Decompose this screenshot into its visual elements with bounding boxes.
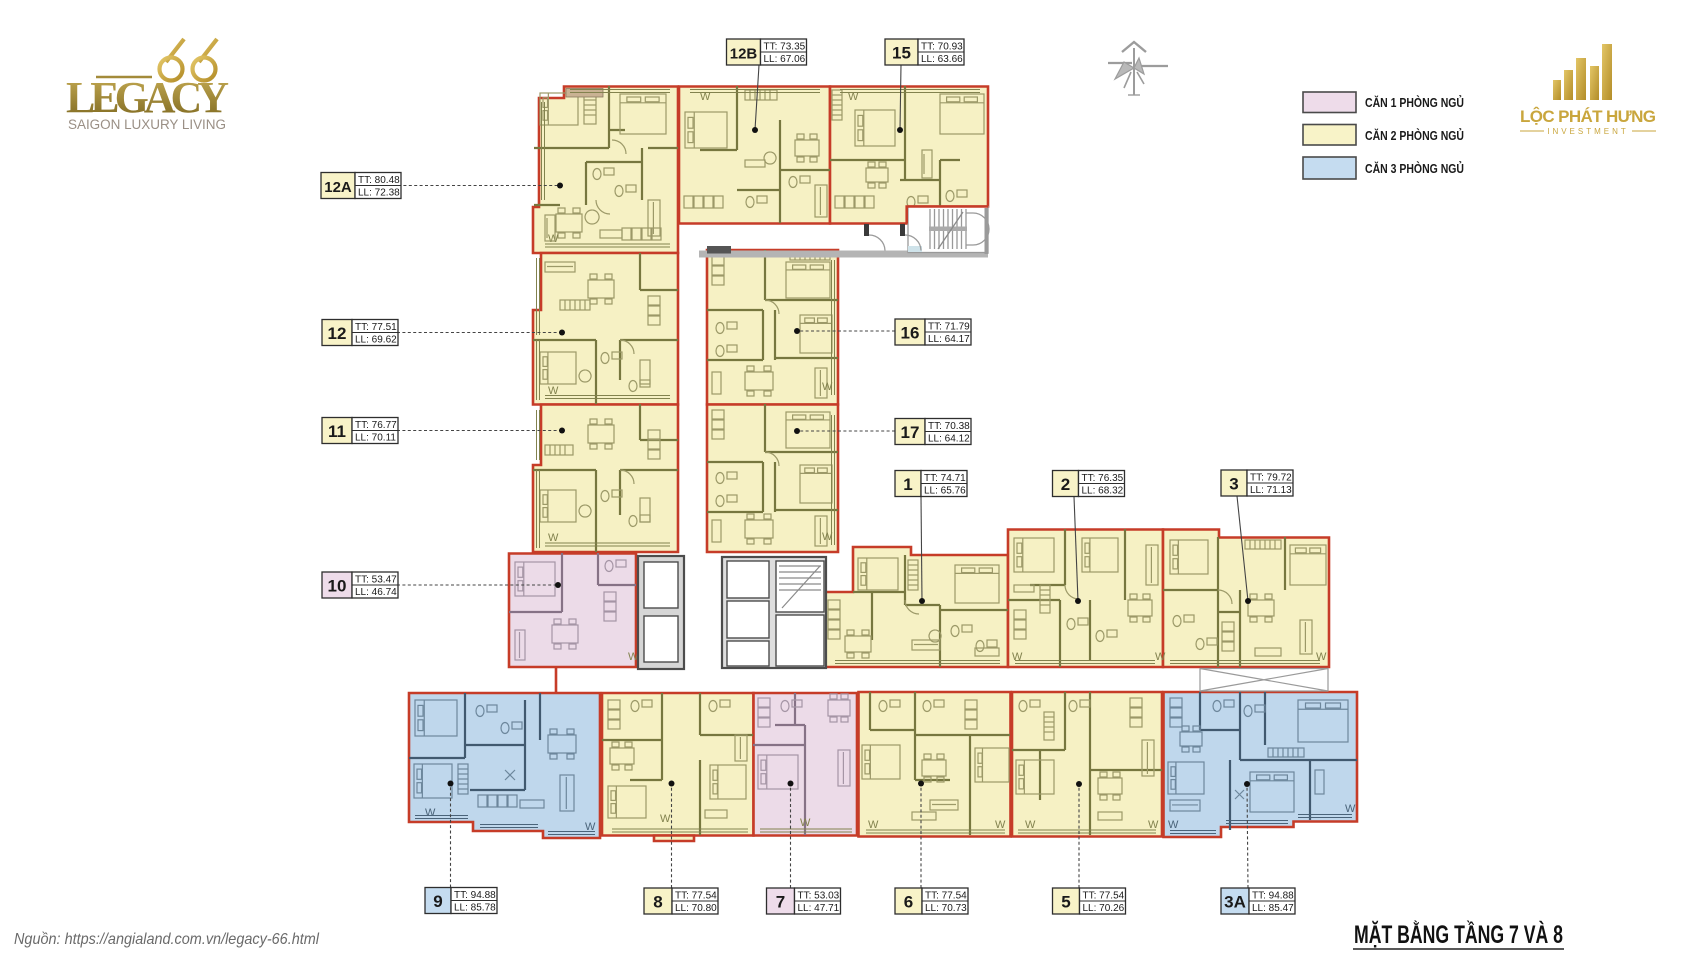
svg-text:SAIGON LUXURY LIVING: SAIGON LUXURY LIVING xyxy=(68,117,226,132)
svg-text:TT: 80.48: TT: 80.48 xyxy=(358,175,400,186)
svg-text:TT: 76.35: TT: 76.35 xyxy=(1082,473,1124,484)
svg-text:TT: 73.35: TT: 73.35 xyxy=(764,42,806,53)
svg-text:5: 5 xyxy=(1061,893,1070,912)
svg-text:LL: 63.66: LL: 63.66 xyxy=(921,54,963,65)
svg-text:TT: 71.79: TT: 71.79 xyxy=(928,322,970,333)
svg-text:TT: 76.77: TT: 76.77 xyxy=(355,420,397,431)
svg-text:W: W xyxy=(1012,651,1023,663)
svg-text:LL: 64.12: LL: 64.12 xyxy=(928,434,970,445)
svg-text:W: W xyxy=(1155,651,1166,663)
svg-text:W: W xyxy=(1168,819,1179,831)
svg-text:LL: 64.17: LL: 64.17 xyxy=(928,334,970,345)
svg-text:W: W xyxy=(800,817,811,829)
svg-text:TT: 94.88: TT: 94.88 xyxy=(1252,891,1294,902)
svg-text:LL: 70.11: LL: 70.11 xyxy=(355,433,396,444)
svg-text:17: 17 xyxy=(901,423,920,442)
svg-text:W: W xyxy=(822,381,833,393)
svg-text:LỘC PHÁT HƯNG: LỘC PHÁT HƯNG xyxy=(1520,107,1656,126)
svg-text:1: 1 xyxy=(903,475,912,494)
svg-text:W: W xyxy=(1345,803,1356,815)
svg-text:W: W xyxy=(700,91,711,103)
svg-text:2: 2 xyxy=(1061,475,1070,494)
svg-text:CĂN 2 PHÒNG NGỦ: CĂN 2 PHÒNG NGỦ xyxy=(1365,128,1464,143)
svg-text:TT: 70.38: TT: 70.38 xyxy=(928,421,970,432)
svg-text:LL: 70.26: LL: 70.26 xyxy=(1083,903,1125,914)
svg-text:W: W xyxy=(548,233,559,245)
svg-text:11: 11 xyxy=(328,422,346,441)
svg-text:9: 9 xyxy=(433,892,442,911)
svg-text:LL: 69.62: LL: 69.62 xyxy=(355,335,397,346)
svg-text:3: 3 xyxy=(1229,475,1238,494)
svg-text:LL: 71.13: LL: 71.13 xyxy=(1250,485,1292,496)
svg-text:W: W xyxy=(548,385,559,397)
svg-text:W: W xyxy=(585,821,596,833)
svg-text:LL: 47.71: LL: 47.71 xyxy=(798,903,840,914)
svg-text:LL: 67.06: LL: 67.06 xyxy=(764,54,806,65)
svg-text:6: 6 xyxy=(904,893,913,912)
svg-text:TT: 77.54: TT: 77.54 xyxy=(1083,891,1125,902)
svg-text:LL: 72.38: LL: 72.38 xyxy=(358,188,400,199)
svg-text:TT: 94.88: TT: 94.88 xyxy=(454,890,496,901)
svg-text:12B: 12B xyxy=(730,46,758,63)
svg-text:LL: 85.78: LL: 85.78 xyxy=(454,903,496,914)
svg-text:TT: 77.54: TT: 77.54 xyxy=(925,891,967,902)
svg-text:15: 15 xyxy=(892,44,911,63)
svg-text:W: W xyxy=(848,91,859,103)
svg-text:TT: 53.03: TT: 53.03 xyxy=(798,891,840,902)
svg-text:12: 12 xyxy=(328,324,347,343)
svg-text:TT: 70.93: TT: 70.93 xyxy=(921,42,963,53)
svg-text:LL: 46.74: LL: 46.74 xyxy=(355,587,397,598)
svg-text:TT: 74.71: TT: 74.71 xyxy=(924,473,966,484)
svg-text:LL: 70.73: LL: 70.73 xyxy=(925,903,967,914)
svg-text:8: 8 xyxy=(653,893,662,912)
svg-text:3A: 3A xyxy=(1224,893,1246,912)
svg-text:LEGACY: LEGACY xyxy=(66,73,229,122)
svg-text:CĂN 3 PHÒNG NGỦ: CĂN 3 PHÒNG NGỦ xyxy=(1365,161,1464,176)
svg-text:10: 10 xyxy=(328,577,347,596)
svg-text:TT: 77.54: TT: 77.54 xyxy=(675,891,717,902)
svg-text:W: W xyxy=(425,807,436,819)
svg-text:Nguồn: https://angialand.com.: Nguồn: https://angialand.com.vn/legacy-6… xyxy=(14,931,319,948)
svg-text:TT: 77.51: TT: 77.51 xyxy=(355,322,397,333)
svg-text:7: 7 xyxy=(776,893,785,912)
svg-text:LL: 65.76: LL: 65.76 xyxy=(924,486,966,497)
svg-text:W: W xyxy=(1316,651,1327,663)
svg-text:W: W xyxy=(822,531,833,543)
svg-text:12A: 12A xyxy=(324,179,352,196)
svg-text:W: W xyxy=(548,532,559,544)
svg-text:W: W xyxy=(868,819,879,831)
svg-text:LL: 70.80: LL: 70.80 xyxy=(675,903,717,914)
svg-text:W: W xyxy=(660,813,671,825)
svg-text:TT: 53.47: TT: 53.47 xyxy=(355,575,397,586)
svg-text:LL: 85.47: LL: 85.47 xyxy=(1252,903,1294,914)
svg-text:INVESTMENT: INVESTMENT xyxy=(1547,127,1629,136)
svg-text:CĂN 1 PHÒNG NGỦ: CĂN 1 PHÒNG NGỦ xyxy=(1365,95,1464,110)
svg-text:LL: 68.32: LL: 68.32 xyxy=(1082,486,1124,497)
svg-text:TT: 79.72: TT: 79.72 xyxy=(1250,473,1292,484)
svg-text:16: 16 xyxy=(901,324,920,343)
svg-text:W: W xyxy=(995,819,1006,831)
svg-text:W: W xyxy=(1025,819,1036,831)
svg-text:MẶT BẰNG TẦNG 7 VÀ 8: MẶT BẰNG TẦNG 7 VÀ 8 xyxy=(1354,920,1563,949)
svg-text:W: W xyxy=(1148,819,1159,831)
